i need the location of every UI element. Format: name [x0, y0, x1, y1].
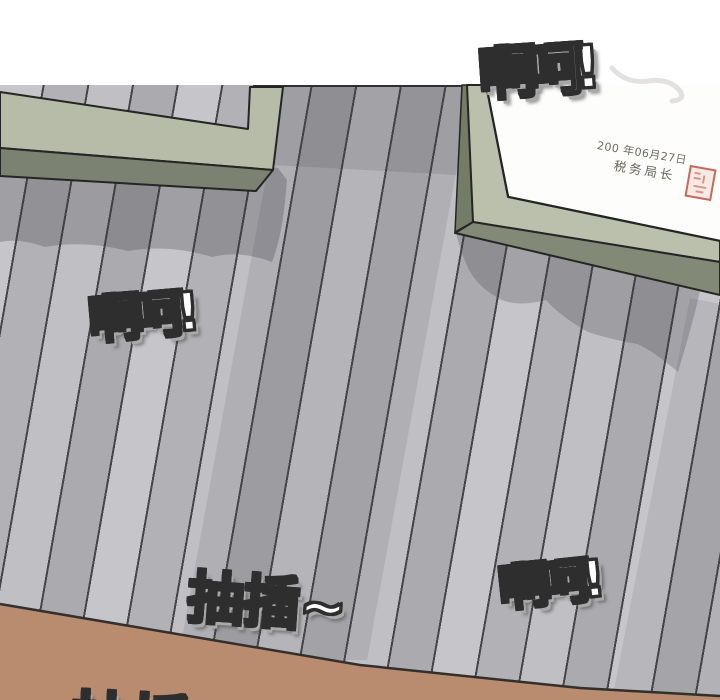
sfx-ahe-top-right: 啊呵!: [475, 20, 593, 112]
sfx-ahe-bottom-right: 啊呵!: [495, 539, 601, 621]
comic-panel: 200 年06月27日 税务局长 啊呵! 啊呵! 啊呵! 抽插~ 抽插~: [0, 0, 720, 700]
official-seal-stamp: [684, 165, 716, 201]
seal-glyphs: [687, 167, 715, 199]
left-picture-frame: [0, 87, 283, 191]
sfx-ahe-mid-left: 啊呵!: [85, 270, 195, 354]
sfx-thrust: 抽插~: [185, 553, 349, 645]
